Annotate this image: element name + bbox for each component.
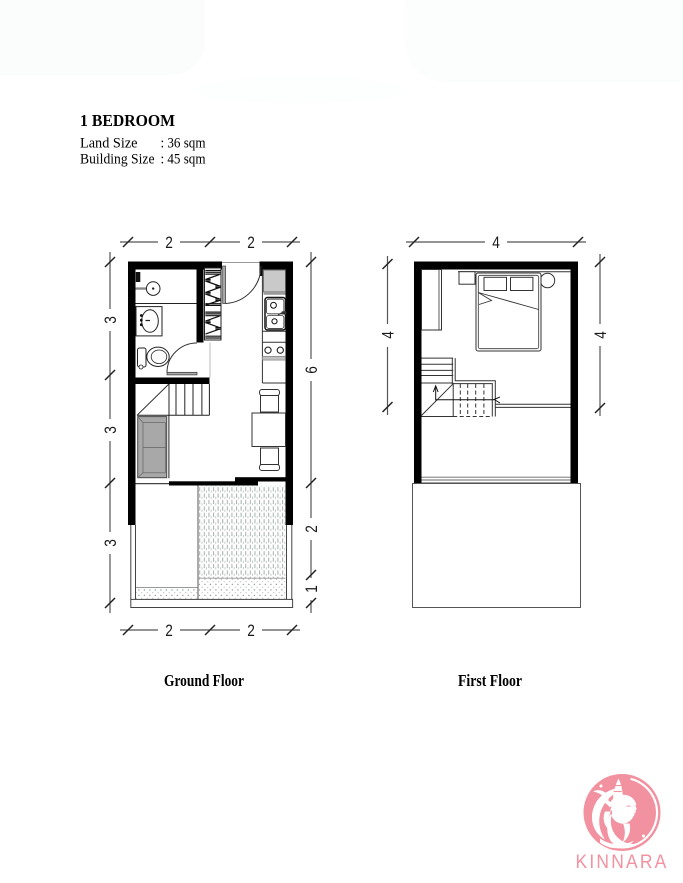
svg-text:2: 2 [247, 621, 255, 640]
svg-text:1: 1 [302, 585, 321, 593]
svg-text:6: 6 [302, 366, 321, 374]
svg-text:2: 2 [302, 525, 321, 533]
svg-text:4: 4 [591, 331, 610, 339]
svg-text:3: 3 [101, 539, 120, 547]
svg-text:KINNARA: KINNARA [576, 852, 669, 873]
svg-text:2: 2 [165, 621, 173, 640]
svg-text:4: 4 [492, 233, 500, 252]
svg-text:3: 3 [101, 316, 120, 324]
svg-text:: 45 sqm: : 45 sqm [161, 152, 207, 168]
svg-text:First Floor: First Floor [458, 671, 522, 690]
svg-text:Land Size: Land Size [80, 136, 138, 152]
svg-text:2: 2 [165, 233, 173, 252]
svg-text:Building Size: Building Size [80, 152, 155, 168]
svg-text:2: 2 [247, 233, 255, 252]
svg-text:3: 3 [101, 426, 120, 434]
svg-text:1 BEDROOM: 1 BEDROOM [80, 111, 175, 130]
svg-text:Ground Floor: Ground Floor [164, 671, 244, 690]
svg-text:: 36 sqm: : 36 sqm [161, 136, 207, 152]
svg-text:4: 4 [379, 331, 398, 339]
